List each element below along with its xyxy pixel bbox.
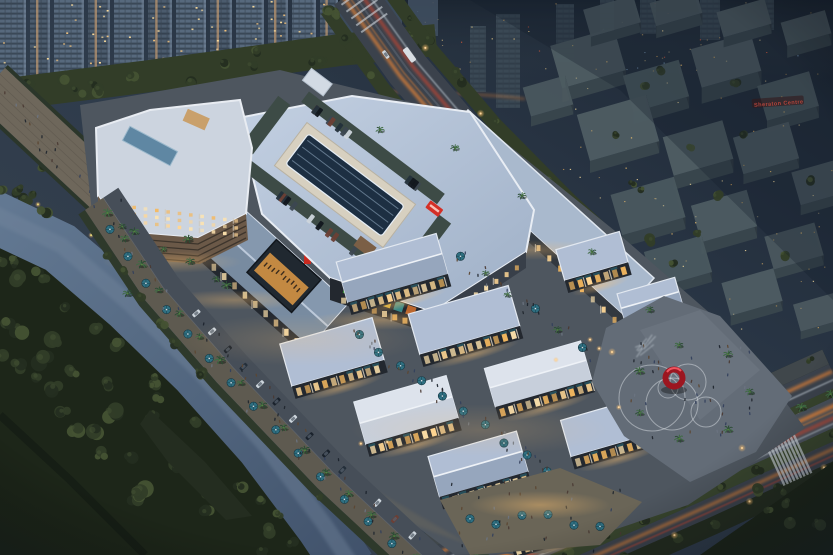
vignette — [0, 0, 833, 555]
aerial-rendering: Sheraton Centre — [0, 0, 833, 555]
rendering-canvas: Sheraton Centre — [0, 0, 833, 555]
